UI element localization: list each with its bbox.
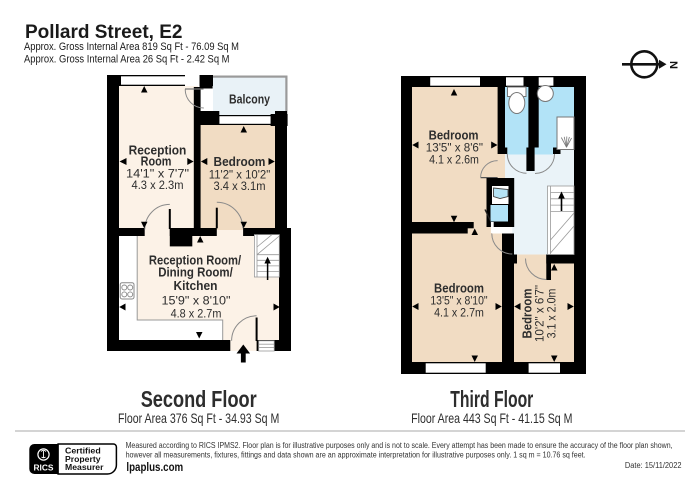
svg-text:Approx. Gross Internal Area 26: Approx. Gross Internal Area 26 Sq Ft - 2… (24, 53, 230, 65)
svg-text:lpaplus.com: lpaplus.com (126, 462, 183, 474)
svg-text:Balcony: Balcony (229, 93, 270, 107)
svg-text:4.8 x 2.7m: 4.8 x 2.7m (171, 306, 222, 320)
svg-text:4.3 x 2.3m: 4.3 x 2.3m (132, 178, 184, 192)
svg-text:4.1 x 2.7m: 4.1 x 2.7m (434, 306, 484, 320)
svg-text:Approx. Gross Internal Area 81: Approx. Gross Internal Area 819 Sq Ft - … (24, 41, 239, 53)
svg-text:Floor Area 376 Sq Ft - 34.93 S: Floor Area 376 Sq Ft - 34.93 Sq M (118, 410, 279, 426)
svg-text:RICS: RICS (34, 463, 55, 472)
svg-text:Kitchen: Kitchen (174, 278, 218, 293)
svg-text:however all measurements, fixt: however all measurements, fixtures, fitt… (126, 451, 586, 460)
svg-text:Measured according to RICS IPM: Measured according to RICS IPMS2. Floor … (126, 441, 673, 450)
svg-text:Second Floor: Second Floor (141, 386, 257, 412)
svg-text:Third Floor: Third Floor (450, 386, 533, 412)
svg-text:3.4 x 3.1m: 3.4 x 3.1m (214, 179, 266, 193)
svg-text:4.1 x 2.6m: 4.1 x 2.6m (429, 153, 479, 167)
svg-text:Date: 15/11/2022: Date: 15/11/2022 (625, 461, 682, 470)
svg-text:3.1 x 2.0m: 3.1 x 2.0m (545, 288, 559, 338)
svg-text:Pollard Street, E2: Pollard Street, E2 (25, 21, 183, 43)
svg-text:Floor Area 443 Sq Ft - 41.15 S: Floor Area 443 Sq Ft - 41.15 Sq M (411, 410, 572, 426)
svg-text:N: N (667, 61, 679, 69)
svg-text:Measurer: Measurer (65, 462, 104, 472)
